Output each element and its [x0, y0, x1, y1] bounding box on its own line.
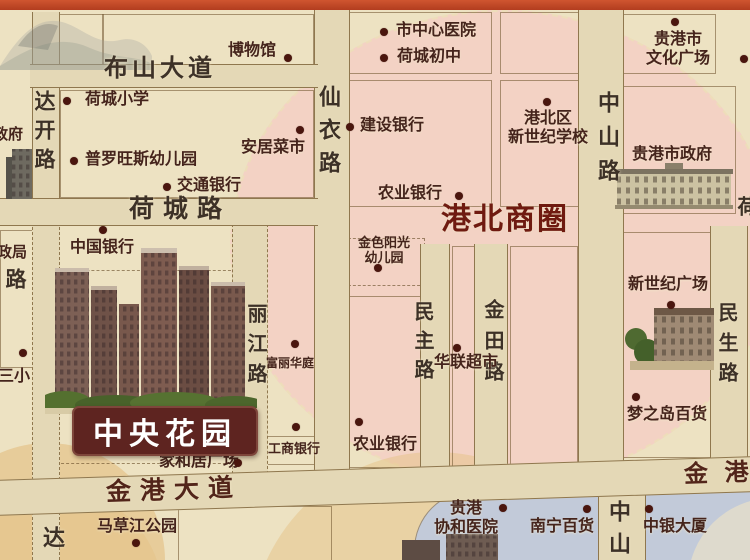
poi-nanning-department-store: 南宁百货: [530, 518, 594, 537]
poi-government-partial: 政府: [0, 126, 23, 144]
poi-hecheng-primary-school: 荷城小学: [85, 91, 149, 110]
dakai-road-south-label: 达: [41, 526, 63, 548]
xianyi-road-label: 仙衣路: [317, 85, 339, 184]
gangbei-business-district-label: 港北商圈: [441, 204, 569, 236]
minsheng-road-label: 民生路: [716, 302, 736, 392]
small-building-image: [4, 145, 34, 203]
poi-dot-bank-of-china-tower: [645, 505, 653, 513]
poi-guigang-culture-square: 贵港市 文化广场: [646, 31, 710, 69]
poi-dot-hualian-supermarket: [453, 344, 461, 352]
poi-dot-hecheng-junior-high: [380, 54, 388, 62]
poi-dot-edge-poi-dot: [740, 55, 748, 63]
poi-macaojiang-park: 马草江公园: [97, 518, 177, 537]
jingang-avenue-label: 金港大道: [106, 475, 243, 506]
poi-dot-gangbei-new-century-school: [543, 98, 551, 106]
poi-dot-bocom-bank: [163, 183, 171, 191]
road-zhongshan-road: [578, 10, 624, 466]
poi-hecheng-junior-high: 荷城初中: [397, 48, 461, 67]
road-xianyi-road: [314, 10, 350, 472]
poi-dot-fulihuating: [291, 340, 299, 348]
central-garden-towers-image: [45, 242, 257, 414]
poi-dot-museum: [284, 54, 292, 62]
poi-gangbei-new-century-school: 港北区 新世纪学校: [508, 110, 588, 148]
poi-golden-sunshine-kindergarten: 金色阳光 幼儿园: [358, 235, 410, 266]
poi-dot-guigang-culture-square: [671, 18, 679, 26]
city-block-12: [510, 246, 578, 468]
poi-dot-nanning-department-store: [583, 505, 591, 513]
left-road-partial-label: 路: [4, 268, 25, 289]
location-map: 中央花园 布山大道荷城路金港大道金 港达开路仙衣路中山路丽江路民主路金田路民生路…: [0, 0, 750, 560]
poi-dot-city-central-hospital: [380, 28, 388, 36]
poi-dot-anju-market: [296, 126, 304, 134]
poi-dot-abc-bank-south: [355, 418, 363, 426]
poi-hualian-supermarket: 华联超市: [434, 354, 498, 373]
bushan-avenue-label: 布山大道: [104, 56, 216, 81]
poi-provence-kindergarten: 普罗旺斯幼儿园: [85, 151, 197, 170]
poi-dot-ccb-bank: [346, 123, 354, 131]
top-accent-bar: [0, 0, 750, 10]
poi-dot-provence-kindergarten: [70, 157, 78, 165]
poi-new-century-plaza: 新世纪广场: [628, 276, 708, 295]
minzhu-road-label: 民主路: [412, 301, 432, 388]
poi-dot-macaojiang-park: [132, 539, 140, 547]
poi-dot-new-century-plaza: [667, 301, 675, 309]
poi-guigang-city-government: 贵港市政府: [632, 146, 712, 165]
zhongshan-road-label: 中山路: [596, 91, 618, 193]
poi-dot-boc-bank: [99, 226, 107, 234]
poi-boc-bank: 中国银行: [70, 239, 134, 258]
poi-museum: 博物馆: [228, 42, 276, 61]
poi-anju-market: 安居菜市: [241, 139, 305, 158]
poi-abc-bank-north: 农业银行: [378, 185, 442, 204]
city-block-15: [178, 506, 332, 560]
poi-dot-dream-island-store: [632, 393, 640, 401]
poi-abc-bank-south: 农业银行: [353, 436, 417, 455]
jingang-avenue-label-east: 金 港: [684, 460, 750, 488]
hecheng-road-label: 荷城路: [129, 196, 231, 222]
poi-guigang-xiehe-hospital: 贵港 协和医院: [434, 500, 498, 538]
poi-icbc-bank: 工商银行: [268, 441, 320, 456]
poi-dot-hecheng-primary-school: [63, 97, 71, 105]
property-name-plaque: 中央花园: [72, 406, 258, 456]
poi-dot-icbc-bank: [292, 423, 300, 431]
poi-dot-third-primary-partial: [19, 349, 27, 357]
poi-bureau-partial: 政局: [0, 244, 27, 262]
zhongshan-road-south-label: 中山: [607, 500, 629, 560]
plaza-building-image: [624, 303, 718, 375]
poi-dot-jiaheju-plaza: [234, 459, 242, 467]
poi-dream-island-store: 梦之岛百货: [627, 406, 707, 425]
dakai-road-label: 达开路: [33, 90, 54, 177]
government-building-image: [615, 163, 733, 211]
poi-third-primary-partial: 三小: [0, 368, 30, 387]
poi-city-central-hospital: 市中心医院: [396, 22, 476, 41]
poi-fulihuating: 富丽华庭: [266, 356, 314, 370]
right-road-partial-label: 荷: [735, 196, 750, 216]
poi-dot-abc-bank-north: [455, 192, 463, 200]
poi-dot-golden-sunshine-kindergarten: [374, 264, 382, 272]
poi-ccb-bank: 建设银行: [360, 117, 424, 136]
poi-bocom-bank: 交通银行: [177, 177, 241, 196]
lijiang-road-label: 丽江路: [245, 303, 265, 393]
poi-dot-guigang-xiehe-hospital: [499, 504, 507, 512]
jintian-road-label: 金田路: [482, 299, 502, 392]
poi-bank-of-china-tower: 中银大厦: [643, 518, 707, 537]
